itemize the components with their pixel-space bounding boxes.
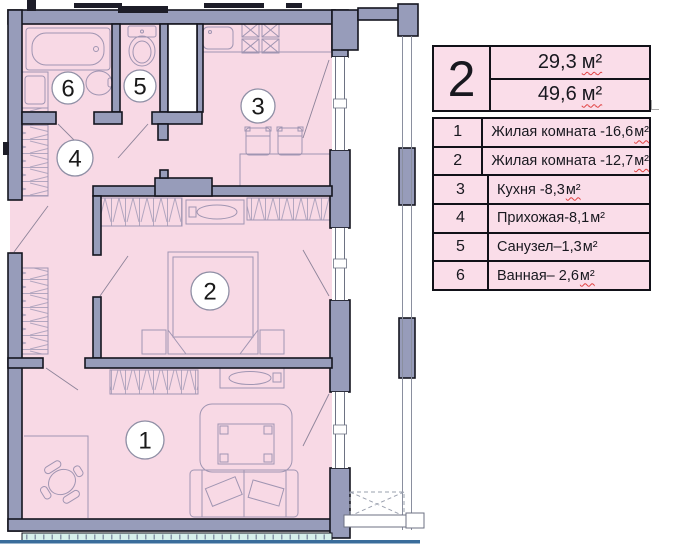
wall-top (8, 10, 335, 24)
balcony-pillar (399, 148, 415, 205)
total-area-row: 49,6 м² (491, 78, 649, 111)
svg-text:5: 5 (133, 74, 146, 101)
wall-bath-bottom (152, 112, 202, 124)
wardrobe-icon (247, 198, 332, 220)
wall-bedroom-left (93, 297, 101, 358)
floorplan-drawing: 1 2 3 4 5 6 (0, 0, 437, 545)
balcony-glazing (403, 36, 412, 530)
svg-text:1: 1 (138, 428, 151, 455)
wall-bath-bottom (94, 112, 122, 124)
wall-bedroom-top-block (155, 178, 212, 196)
room-label-3: 3 (241, 89, 275, 123)
svg-text:3: 3 (251, 94, 264, 121)
room-label-1: 1 (126, 421, 164, 459)
legend-room-number: 3 (434, 176, 489, 203)
svg-text:2: 2 (203, 279, 216, 306)
room-label-6: 6 (52, 72, 84, 104)
legend-room-number: 1 (434, 119, 483, 146)
legend-room-number: 4 (434, 205, 489, 232)
total-area-value: 49,6 (538, 83, 577, 106)
wall-shaft-kitchen (197, 24, 203, 112)
legend-room-number: 5 (434, 234, 489, 261)
windows (332, 57, 348, 468)
balcony-pillar (398, 4, 418, 36)
wardrobe-icon (110, 370, 198, 394)
balcony-bar-top (358, 8, 400, 20)
window-livingroom (332, 392, 348, 468)
lower-balcony (22, 533, 332, 541)
room-legend-table: 1 Жилая комната -16,6м² 2 Жилая комната … (432, 117, 651, 291)
legend-room-label: Кухня -8,3м² (489, 182, 581, 198)
living-area-row: 29,3 м² (491, 47, 649, 78)
wall-wc-shaft (160, 24, 168, 112)
legend-row: 4 Прихожая-8,1м² (434, 203, 649, 232)
legend-room-number: 2 (434, 148, 483, 175)
wall-left (8, 10, 22, 200)
window-kitchen (332, 57, 348, 150)
wall-right (330, 150, 350, 228)
balcony-bar-end (406, 513, 424, 528)
wall-stub (160, 170, 168, 178)
wall-bedroom-bottom (85, 358, 332, 368)
living-area-unit: м² (582, 51, 602, 74)
legend-room-label: Прихожая-8,1м² (489, 210, 605, 226)
balcony-pillar (399, 318, 415, 378)
unit-summary-table: 2 29,3 м² 49,6 м² (432, 45, 651, 112)
legend-row: 6 Ванная– 2,6м² (434, 260, 649, 289)
legend-row: 1 Жилая комната -16,6м² (434, 119, 649, 146)
svg-text:4: 4 (68, 146, 81, 173)
window-bedroom (332, 228, 348, 300)
legend-row: 2 Жилая комната -12,7м² (434, 146, 649, 175)
legend-room-label: Жилая комната -16,6м² (483, 124, 649, 140)
wall-stub (158, 124, 168, 140)
room-label-5: 5 (124, 70, 156, 102)
floorplan-page: 1 2 3 4 5 6 2 (0, 0, 675, 545)
wall-bath-bottom (22, 112, 56, 124)
resize-handle-artifact (651, 100, 659, 110)
wardrobe-icon (22, 268, 48, 354)
wall-bath-wc (112, 24, 120, 112)
wall-right (330, 300, 350, 392)
legend-room-label: Жилая комната -12,7м² (483, 153, 649, 169)
wall-bottom (8, 519, 345, 531)
room-label-4: 4 (57, 140, 93, 176)
legend-room-label: Санузел–1,3м² (489, 239, 598, 255)
unit-number: 2 (434, 47, 491, 110)
wall-left (8, 253, 22, 531)
living-area-value: 29,3 (538, 51, 577, 74)
svg-text:6: 6 (61, 76, 74, 103)
wall-bedroom-bottom (8, 358, 43, 368)
legend-row: 3 Кухня -8,3м² (434, 174, 649, 203)
legend-room-number: 6 (434, 262, 489, 289)
shaft (168, 24, 197, 112)
wardrobe-icon (100, 198, 182, 226)
page-rule (0, 540, 420, 544)
room-label-2: 2 (191, 272, 229, 310)
legend-room-label: Ванная– 2,6м² (489, 268, 595, 284)
pillar (332, 10, 358, 50)
wall-bedroom-left (93, 196, 101, 255)
total-area-unit: м² (582, 83, 602, 106)
legend-row: 5 Санузел–1,3м² (434, 232, 649, 261)
